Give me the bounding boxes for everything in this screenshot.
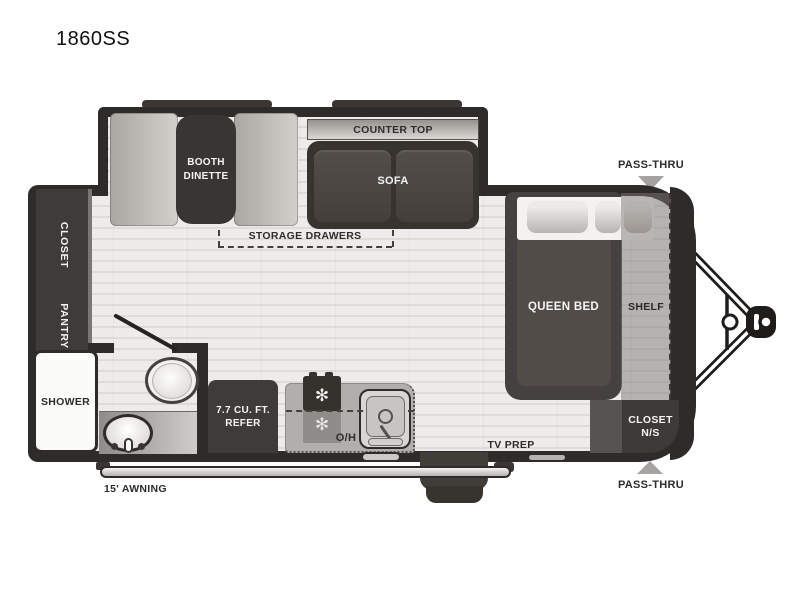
pass-thru-bottom-label: PASS-THRU <box>610 478 692 492</box>
bathroom-door-swing <box>112 312 182 354</box>
refer-label-line2: REFER <box>225 418 260 429</box>
booth-dinette-label-line2: DINETTE <box>184 171 229 182</box>
shelf-label: SHELF <box>621 300 671 314</box>
tv-prep-label: TV PREP <box>478 438 544 452</box>
pillow-icon <box>527 201 588 233</box>
sofa-label: SOFA <box>307 174 479 188</box>
dinette-bench-right <box>234 113 298 226</box>
queen-bed-label: QUEEN BED <box>505 300 622 314</box>
storage-drawers-label: STORAGE DRAWERS <box>218 229 392 243</box>
toilet-bowl-icon <box>152 363 192 399</box>
tongue-jack-icon <box>723 315 737 329</box>
pillow-icon <box>595 201 621 233</box>
faucet-knob-right-icon <box>138 443 145 450</box>
counter-top: COUNTER TOP <box>307 119 479 140</box>
stove-knob-icon <box>325 372 333 378</box>
booth-dinette-table: BOOTH DINETTE <box>176 115 236 224</box>
entry-step-lower <box>426 486 483 503</box>
storage-drawers-dash-bottom <box>218 246 392 248</box>
model-title: 1860SS <box>56 28 130 51</box>
pass-thru-bottom-arrow-icon <box>637 461 663 474</box>
refer-label-line1: 7.7 CU. FT. <box>216 405 270 416</box>
counter-top-label: COUNTER TOP <box>308 120 478 139</box>
stove-knob-icon <box>309 372 317 378</box>
closet-ns-label-line2: N/S <box>641 427 659 439</box>
exterior-wall-marker <box>527 453 567 462</box>
hitch-aframe <box>690 240 790 410</box>
kitchen-sink-tray <box>368 438 403 446</box>
awning-label: 15' AWNING <box>104 482 214 496</box>
bedroom-partition <box>590 400 622 453</box>
bathroom-wall-vertical <box>197 343 208 453</box>
bathroom-faucet-icon <box>124 438 133 453</box>
shelf <box>621 193 671 400</box>
shower: SHOWER <box>33 350 98 453</box>
faucet-knob-left-icon <box>111 443 118 450</box>
stove-burner-icon: ✻ <box>310 386 334 406</box>
shower-label: SHOWER <box>36 353 95 450</box>
pass-thru-top-label: PASS-THRU <box>610 158 692 172</box>
kitchen-faucet-icon <box>378 409 393 424</box>
refrigerator: 7.7 CU. FT. REFER <box>208 380 278 453</box>
overhead-cabinet-label: O/H <box>330 431 362 445</box>
storage-drawers-dash-right <box>392 230 394 247</box>
hitch-ball-icon <box>760 316 772 328</box>
floorplan-canvas: 1860SS BOOTH DINETTE COUNTER TOP SOFA ST… <box>0 0 800 600</box>
entry-door-marker <box>361 452 401 462</box>
closet-ns-label-line1: CLOSET <box>628 414 672 426</box>
pantry-label: PANTRY <box>38 293 90 359</box>
closet-label: CLOSET <box>38 189 90 301</box>
booth-dinette-label-line1: BOOTH <box>187 157 225 168</box>
dinette-bench-left <box>110 113 178 226</box>
awning-roller-bar <box>100 466 511 478</box>
